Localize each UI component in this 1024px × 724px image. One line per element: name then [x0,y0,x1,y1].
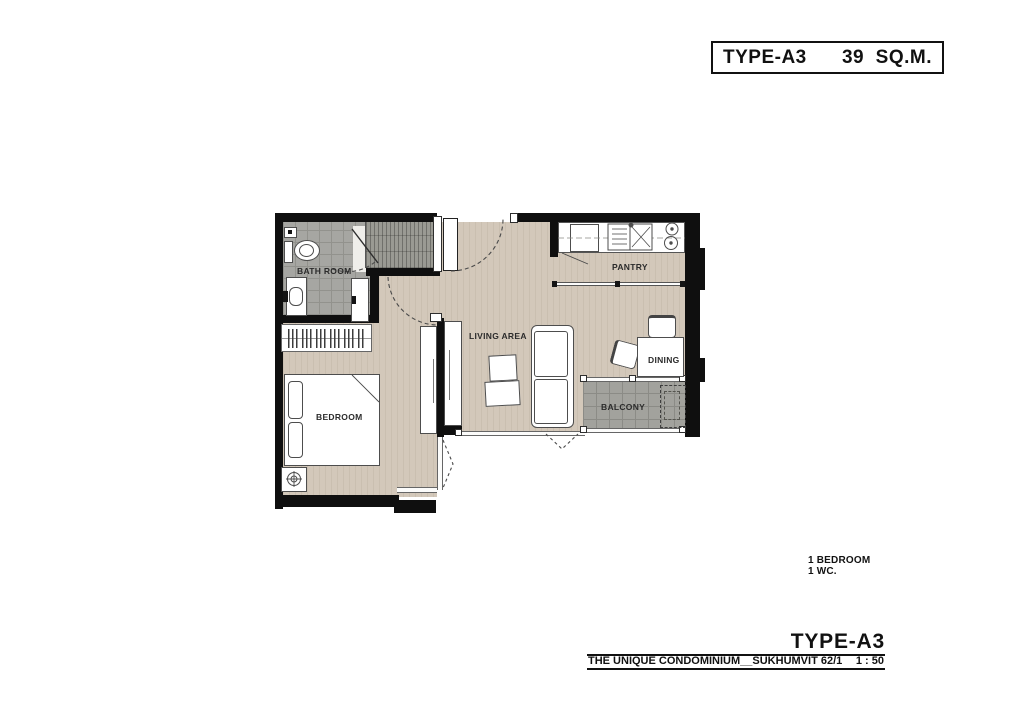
unit-type-label: TYPE-A3 [723,47,807,69]
label-bedroom: BEDROOM [316,412,363,422]
slider-post-mid [629,375,636,382]
summary-wc: 1 WC. [808,566,870,577]
hanger-group [288,329,298,348]
balcony-railing [583,428,685,433]
slider-post-left [580,375,587,382]
window-bedroom-bottom [397,487,437,493]
wall-bathroom-right [370,273,379,323]
armchair-seat [484,380,520,407]
pillow [288,381,303,419]
shower-valve [283,291,288,302]
wardrobe-panel-living [444,321,462,426]
entry-opening-post [510,213,518,223]
wall-wardrobe-partition [437,318,444,437]
toilet-tank [284,241,293,263]
floorplan-page: { "header": { "type": "TYPE-A3", "area":… [0,0,1024,724]
pillow [288,422,303,458]
casement-window-symbol [443,440,453,488]
wardrobe-closet [281,324,372,352]
wall-top-left [275,213,437,222]
partition-post-left [552,281,557,287]
partition-post-right [680,281,685,287]
unit-summary: 1 BEDROOM 1 WC. [808,555,870,577]
wall-right-jut-pantry [697,248,705,290]
summary-bedrooms: 1 BEDROOM [808,555,870,566]
armchair-back [488,354,517,381]
window-bedroom-right [437,437,443,490]
wardrobe-handle [449,350,450,400]
ac-unit-inner [664,391,680,420]
partition-post-mid [615,281,620,287]
kitchen-cabinet [570,224,599,252]
unit-area-label: 39 SQ.M. [842,47,932,69]
wardrobe-handle [433,359,434,403]
sofa-cushion [534,379,568,424]
hanger-group [302,329,312,348]
vanity-sink-bowl [289,287,303,306]
wall-bottom-bedroom [275,495,399,507]
railing-post-left [580,426,587,433]
shower-hatch-area [365,222,436,268]
entry-door-jamb [433,216,442,272]
bedside-table [281,467,307,492]
shower-fixture [352,296,356,304]
wall-right [685,213,700,437]
hanger-group [358,329,366,348]
toilet-bowl-inner [299,244,314,257]
title-block: TYPE-A3 THE UNIQUE CONDOMINIUM__SUKHUMVI… [587,629,885,670]
titleblock-project: THE UNIQUE CONDOMINIUM__SUKHUMVIT 62/1 [588,656,842,667]
partition-top-post [430,313,442,322]
titleblock-scale: 1 : 50 [856,656,884,667]
wall-bottom-step [394,500,436,513]
hanger-group [316,329,326,348]
wardrobe-panel-bedroom [420,326,437,434]
wall-right-jut-dining [697,358,705,382]
window-living-bottom [459,431,585,436]
sofa-cushion [534,331,568,377]
wall-shower-bottom [366,268,440,276]
label-balcony: BALCONY [601,402,645,412]
label-bathroom: BATH ROOM [297,266,351,276]
wall-left [275,213,283,509]
label-pantry: PANTRY [612,262,648,272]
hanger-group [330,329,340,348]
type-area-box: TYPE-A3 39 SQ.M. [711,41,944,74]
label-living-area: LIVING AREA [469,331,527,341]
hanger-group [344,329,354,348]
dining-chair-top [648,315,676,338]
label-dining: DINING [648,355,680,365]
bathroom-shelf-dot [288,230,292,234]
wall-top-right [514,213,700,222]
living-window-post [455,429,462,436]
wall-pantry-left [550,213,558,257]
ac-condenser-unit [660,385,686,428]
titleblock-type: TYPE-A3 [587,629,885,654]
titleblock-rule-bottom [587,668,885,670]
entry-door-leaf [443,218,458,271]
window-opening-symbol [546,434,578,449]
